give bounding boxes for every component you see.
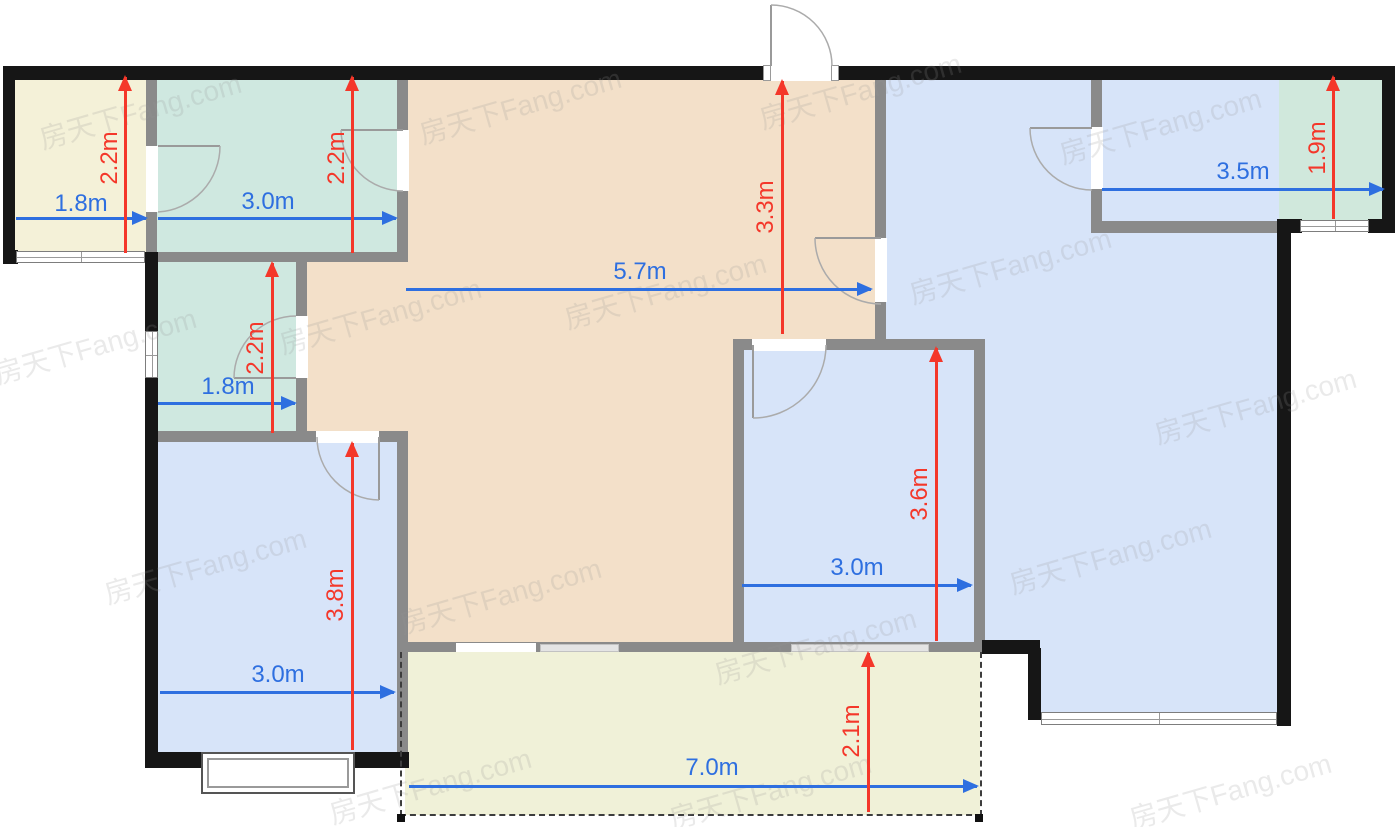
wall-top-left xyxy=(8,66,770,80)
wall-bottom-b xyxy=(351,752,409,768)
wall-living-right xyxy=(1277,228,1291,726)
window-inner-bottom xyxy=(791,644,929,652)
watermark-text: 房天下Fang.com xyxy=(1124,742,1335,827)
wall-inner-top-b xyxy=(826,339,985,350)
wall-left-upper xyxy=(3,66,15,264)
wall-divider-lower xyxy=(146,212,157,256)
bedroom-bottomleft xyxy=(156,438,399,753)
wall-kitchen-bottom xyxy=(1091,221,1284,233)
wall-bedroombl-right xyxy=(397,431,408,757)
floor-plan: 房天下Fang.com房天下Fang.com房天下Fang.com房天下Fang… xyxy=(0,0,1400,827)
wall-kitchen-corner-r xyxy=(1368,219,1395,233)
wall-bedroombl-top-a xyxy=(146,431,316,442)
door-opening-bathmid xyxy=(296,316,308,378)
window-kitchen-bottom xyxy=(1300,220,1369,232)
wall-left-mid xyxy=(145,252,158,332)
wall-bathtop-bottom xyxy=(146,252,408,262)
entry-door-frame-right xyxy=(831,65,839,81)
opening-balcony xyxy=(456,643,536,652)
wall-inner-left xyxy=(733,339,744,652)
room-bath-top xyxy=(155,78,399,256)
bay-window-inner xyxy=(207,758,349,788)
wall-kitchen-left-a xyxy=(1091,78,1102,127)
door-opening-hall xyxy=(875,238,887,302)
balcony-corner-left xyxy=(397,814,405,822)
room-storage-topleft xyxy=(13,78,147,253)
window-balcony-door xyxy=(540,644,619,652)
door-arc-entry xyxy=(771,5,832,66)
window-storage-bottom xyxy=(16,251,145,263)
wall-left-lower xyxy=(145,378,158,768)
door-opening-bedroombl xyxy=(316,431,379,443)
wall-bathtop-right-a xyxy=(397,80,408,130)
wall-top-right xyxy=(832,66,1395,80)
door-opening-inner xyxy=(752,339,826,351)
wall-kitchen-corner-l xyxy=(1277,219,1302,233)
living-room-main xyxy=(884,79,1279,644)
balcony xyxy=(405,650,980,815)
room-bath-mid xyxy=(155,258,297,434)
door-opening-kitchen xyxy=(1091,127,1103,189)
wall-bathmid-right-a xyxy=(296,258,307,316)
wall-divider-upper xyxy=(146,80,157,146)
wall-kitchen-right xyxy=(1382,66,1395,233)
balcony-corner-right xyxy=(975,814,983,822)
door-opening-storage xyxy=(146,146,158,212)
door-opening-bathtop xyxy=(397,130,409,191)
window-left-wall xyxy=(145,331,158,378)
wall-inner-right xyxy=(974,339,985,652)
wall-bathmid-right-b xyxy=(296,378,307,434)
living-room-notch xyxy=(1039,640,1279,715)
wall-hall-right-a xyxy=(875,78,886,238)
entry-door-frame-left xyxy=(763,65,771,81)
window-living-bottom xyxy=(1041,712,1277,725)
wall-bathtop-right-b xyxy=(397,191,408,254)
door-opening-entry xyxy=(770,66,832,81)
wall-living-notch-v xyxy=(1028,648,1041,720)
